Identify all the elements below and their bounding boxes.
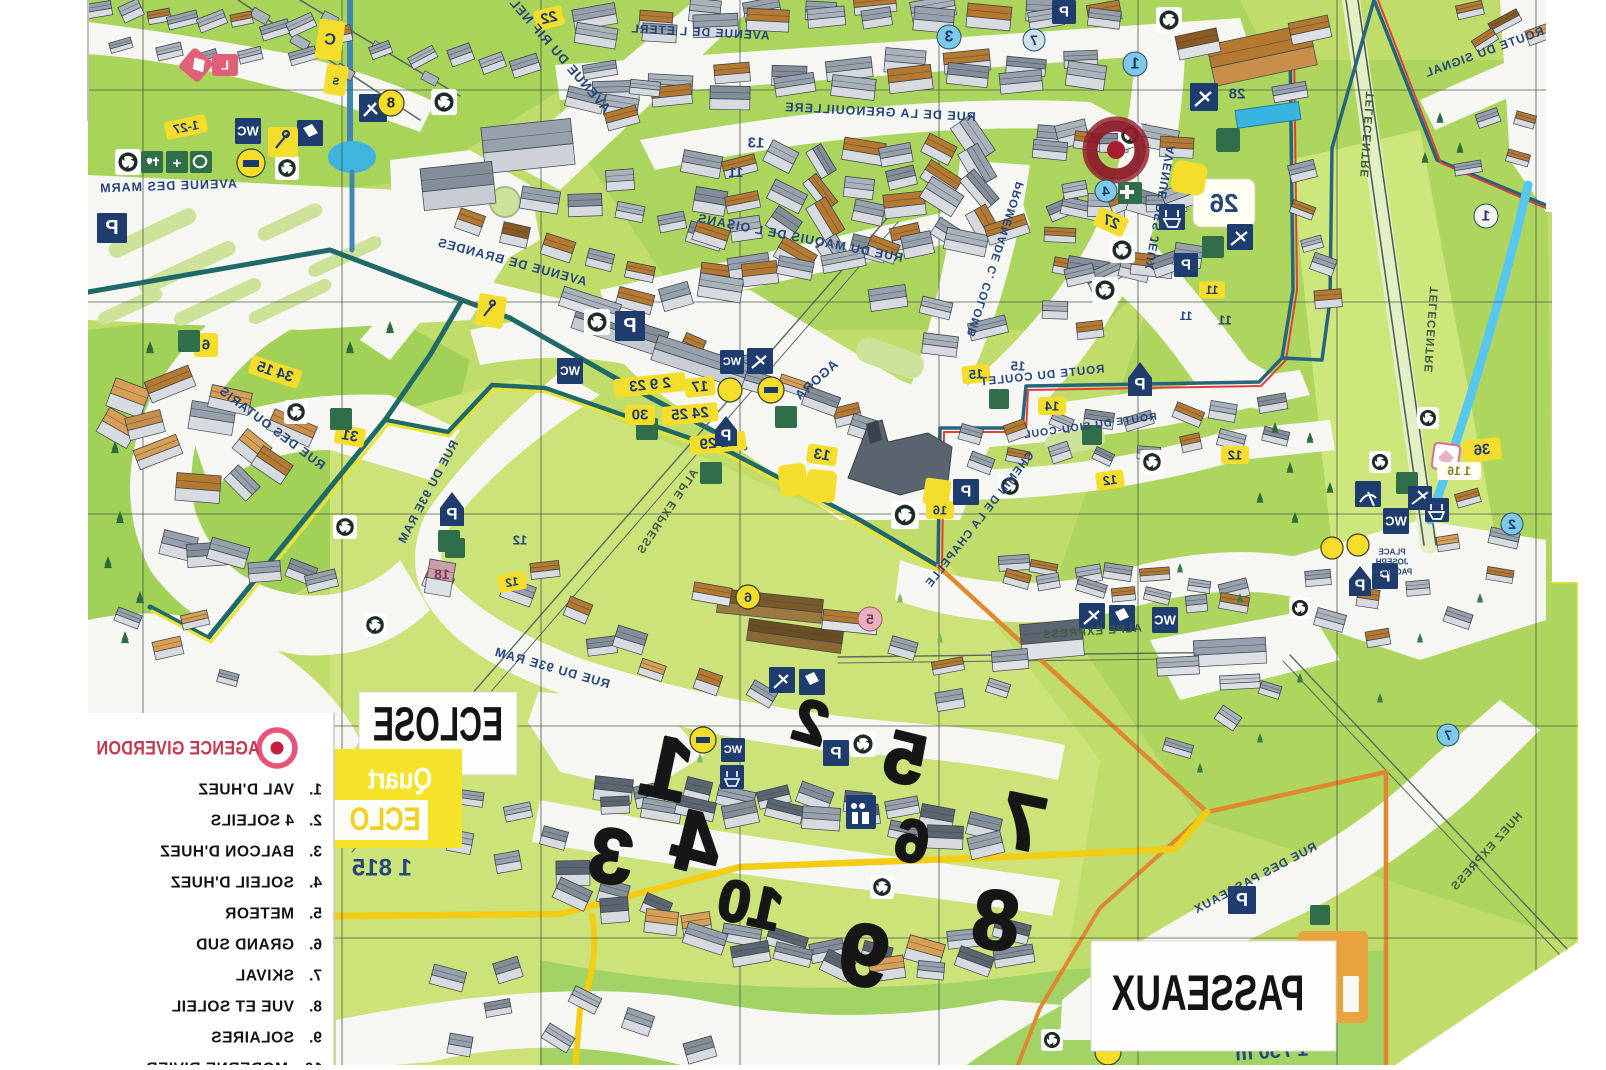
svg-text:17: 17 [691,378,709,397]
svg-text:3.: 3. [309,844,322,861]
svg-text:P: P [830,744,841,763]
svg-text:PLACE: PLACE [1378,548,1406,557]
svg-text:JOSEPH: JOSEPH [1376,558,1409,567]
svg-text:15: 15 [1011,359,1025,374]
svg-text:P: P [446,505,457,524]
svg-text:8.: 8. [309,999,322,1016]
svg-text:1: 1 [1482,208,1490,225]
svg-text:6.: 6. [309,937,322,954]
svg-text:PASSEAUX: PASSEAUX [1112,966,1305,1021]
svg-text:7: 7 [1444,727,1452,743]
svg-text:ECLO: ECLO [349,802,420,837]
svg-text:6: 6 [744,589,752,605]
svg-text:2.: 2. [309,813,322,830]
svg-text:12: 12 [1228,448,1242,463]
svg-text:28: 28 [1229,86,1246,103]
svg-text:1: 1 [1130,56,1139,73]
svg-text:P: P [1059,4,1069,21]
svg-text:P: P [720,428,731,445]
svg-text:10: 10 [712,867,789,944]
svg-text:5.: 5. [309,906,322,923]
svg-text:SKIVAL: SKIVAL [235,968,294,985]
svg-text:11: 11 [728,164,743,180]
svg-text:WC: WC [1385,514,1407,529]
svg-text:11: 11 [1218,313,1232,328]
svg-text:6: 6 [202,337,210,354]
svg-text:5: 5 [866,611,874,627]
svg-text:1 815: 1 815 [352,855,412,882]
svg-text:3: 3 [944,29,953,46]
svg-text:8: 8 [968,871,1024,969]
svg-text:26: 26 [1210,188,1239,218]
svg-text:1 16: 1 16 [1447,464,1471,478]
svg-text:P: P [105,217,118,239]
svg-text:SOLEIL D'HUEZ: SOLEIL D'HUEZ [170,875,294,892]
svg-text:WC: WC [724,744,742,756]
svg-text:BALCON D'HUEZ: BALCON D'HUEZ [160,844,294,861]
svg-text:WC: WC [1154,613,1176,628]
svg-text:4.: 4. [309,875,322,892]
svg-text:AGENCE GIVERDON: AGENCE GIVERDON [96,737,259,759]
svg-text:VUE ET SOLEIL: VUE ET SOLEIL [171,999,294,1016]
svg-text:WC: WC [723,356,741,368]
svg-text:12: 12 [513,533,527,548]
svg-text:2: 2 [1508,516,1516,532]
svg-text:Quart: Quart [368,761,432,795]
svg-text:P: P [1181,257,1191,274]
svg-text:VAL D'HUEZ: VAL D'HUEZ [198,782,294,799]
svg-text:7.: 7. [309,968,322,985]
svg-text:4 SOLEILS: 4 SOLEILS [210,813,294,830]
svg-text:✝: ✝ [151,157,160,169]
svg-text:36: 36 [1473,441,1491,460]
svg-text:11: 11 [1179,309,1192,323]
svg-text:L: L [221,58,229,73]
svg-text:WC: WC [560,364,580,378]
svg-text:+: + [173,155,182,172]
svg-text:8: 8 [387,95,395,112]
svg-text:PAGANON: PAGANON [1372,568,1413,577]
svg-text:P: P [960,484,971,501]
svg-text:24 25: 24 25 [671,404,710,424]
svg-text:7: 7 [1030,32,1038,48]
svg-text:13: 13 [748,135,765,152]
svg-text:18: 18 [434,566,450,582]
svg-text:P: P [1354,578,1365,595]
svg-text:GRAND SUD: GRAND SUD [196,937,294,954]
svg-text:11: 11 [1205,283,1218,297]
svg-text:13: 13 [813,445,832,464]
svg-text:P: P [623,315,636,337]
svg-text:ECLOSE: ECLOSE [373,697,503,751]
svg-text:4: 4 [1102,183,1110,199]
svg-text:12: 12 [1102,472,1118,489]
svg-text:SOLAIRES: SOLAIRES [211,1030,294,1047]
svg-text:WC: WC [237,124,259,139]
svg-text:P: P [1134,375,1145,394]
svg-text:12: 12 [504,574,520,590]
svg-text:1.: 1. [309,782,322,799]
svg-text:14: 14 [1044,399,1059,414]
svg-text:METEOR: METEOR [225,906,294,923]
svg-text:9.: 9. [309,1030,322,1047]
svg-text:30: 30 [632,407,649,424]
